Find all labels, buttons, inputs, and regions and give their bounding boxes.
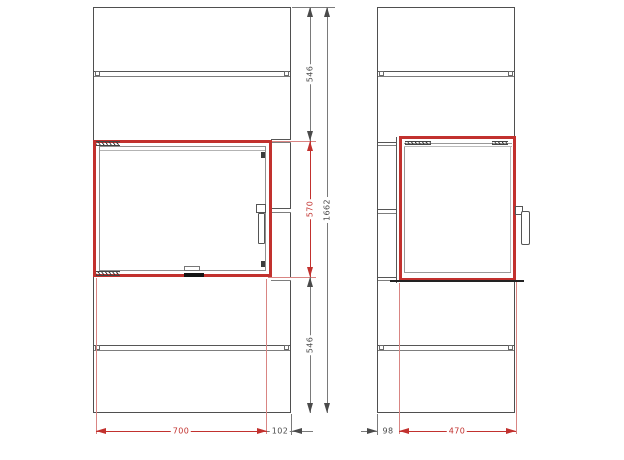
dim-arrow bbox=[324, 403, 330, 413]
door-latch-mark-bottom bbox=[261, 261, 265, 267]
dim-arrow bbox=[307, 267, 313, 277]
dim-label-lower-height: 546 bbox=[306, 335, 315, 355]
dim-arrow bbox=[399, 428, 409, 434]
side-strip-seam-mid bbox=[378, 209, 396, 214]
dim-arrow bbox=[257, 428, 267, 434]
seam-notch bbox=[379, 71, 384, 76]
side-door-inner-line-bottom bbox=[404, 272, 511, 273]
dim-arrow bbox=[307, 7, 313, 17]
door-bottom-latch-bar bbox=[184, 273, 204, 277]
side-body-strip-line bbox=[396, 137, 397, 283]
seam-notch bbox=[284, 71, 289, 76]
dim-label-upper-height: 546 bbox=[306, 64, 315, 84]
seam-notch bbox=[508, 71, 513, 76]
dim-arrow bbox=[367, 428, 377, 434]
dim-arrow bbox=[307, 403, 313, 413]
dim-arrow bbox=[307, 277, 313, 287]
extension-line-side-left bbox=[377, 414, 378, 435]
dim-arrow bbox=[292, 428, 302, 434]
dim-arrow bbox=[307, 131, 313, 141]
door-bottom-latch-tab bbox=[184, 266, 200, 271]
side-door-top-trim-line2 bbox=[404, 146, 512, 147]
dim-label-door-width: 700 bbox=[171, 427, 191, 436]
dim-arrow bbox=[324, 7, 330, 17]
seam-notch bbox=[379, 345, 384, 350]
side-door-handle-bar bbox=[521, 211, 530, 245]
dim-label-door-height: 570 bbox=[306, 199, 315, 219]
side-door-inner-line-right bbox=[510, 147, 511, 273]
dim-label-total-height: 1662 bbox=[323, 197, 332, 223]
extension-line-side-door-rear-red bbox=[516, 281, 517, 434]
front-panel-seam-upper bbox=[94, 71, 290, 77]
dim-arrow bbox=[96, 428, 106, 434]
front-door-inner-frame bbox=[99, 146, 266, 271]
front-door-handle-mount bbox=[256, 204, 266, 213]
side-door-sill bbox=[390, 280, 524, 282]
dim-arrow bbox=[307, 141, 313, 151]
extension-line-side-door-front-red bbox=[399, 283, 400, 434]
dim-arrow bbox=[506, 428, 516, 434]
front-door-top-trim-line bbox=[100, 150, 265, 151]
dim-label-right-panel-width: 102 bbox=[270, 427, 290, 436]
front-door-handle-bar bbox=[258, 213, 265, 244]
seam-notch bbox=[508, 345, 513, 350]
side-panel-seam-upper bbox=[378, 71, 514, 77]
extension-line-door-left-red bbox=[96, 278, 97, 434]
side-door-frame bbox=[399, 136, 516, 281]
extension-line-door-right-red bbox=[266, 279, 267, 434]
door-hinge-bottom bbox=[96, 271, 120, 276]
front-view bbox=[0, 0, 350, 460]
side-door-latch-detail bbox=[492, 141, 508, 145]
side-strip-seam-top bbox=[378, 142, 396, 146]
front-panel-seam-lower bbox=[94, 345, 290, 351]
side-view bbox=[350, 0, 624, 460]
door-latch-mark-top bbox=[261, 152, 265, 158]
dim-label-rear-depth: 98 bbox=[381, 427, 396, 436]
side-door-inner-line-left bbox=[404, 147, 405, 273]
right-strip-seam-mid bbox=[271, 208, 291, 213]
drawing-canvas: 546 570 546 1662 700 102 bbox=[0, 0, 624, 460]
side-door-hinge-detail bbox=[405, 141, 431, 145]
seam-notch bbox=[95, 71, 100, 76]
door-hinge-top bbox=[96, 141, 120, 146]
dim-label-door-depth: 470 bbox=[447, 427, 467, 436]
seam-notch bbox=[284, 345, 289, 350]
